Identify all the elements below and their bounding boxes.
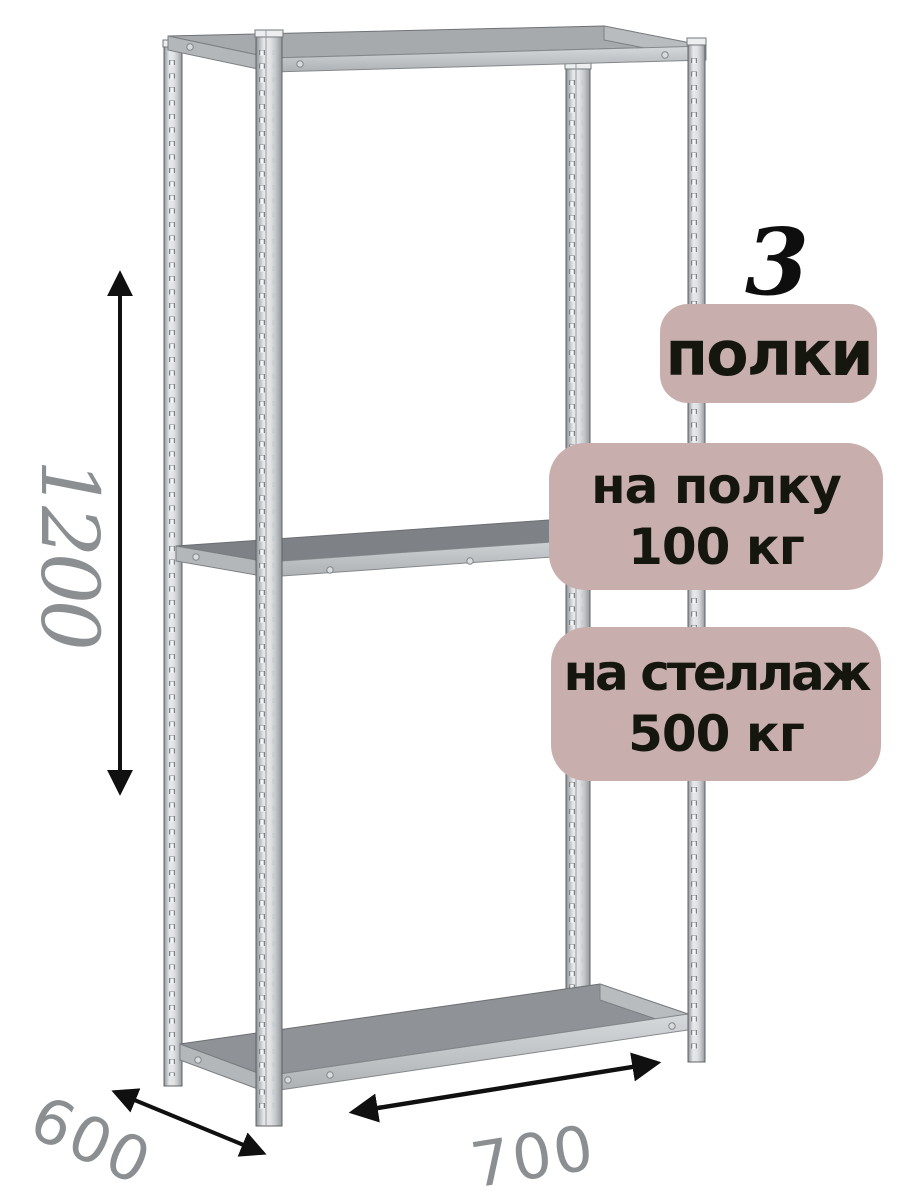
shelf-load-line1: на полку	[591, 456, 841, 517]
shelves-badge-label: полки	[665, 317, 871, 390]
post-back-left	[163, 40, 183, 1086]
shelving-rack-illustration	[0, 0, 900, 1200]
shelf-load-badge: на полку 100 кг	[549, 443, 883, 590]
shelf-count-number: 3	[702, 216, 852, 308]
shelf-load-line2: 100 кг	[628, 517, 804, 578]
shelves-badge: полки	[660, 304, 877, 403]
post-front-left	[255, 30, 283, 1126]
rack-load-line2: 500 кг	[628, 704, 804, 765]
rack-load-badge: на стеллаж 500 кг	[551, 627, 881, 781]
shelf-top	[168, 26, 706, 72]
product-image: 1200 600 700 3 полки на полку 100 кг на …	[0, 0, 900, 1200]
rack-load-line1: на стеллаж	[564, 643, 869, 704]
height-dimension-label: 1200	[21, 398, 117, 708]
